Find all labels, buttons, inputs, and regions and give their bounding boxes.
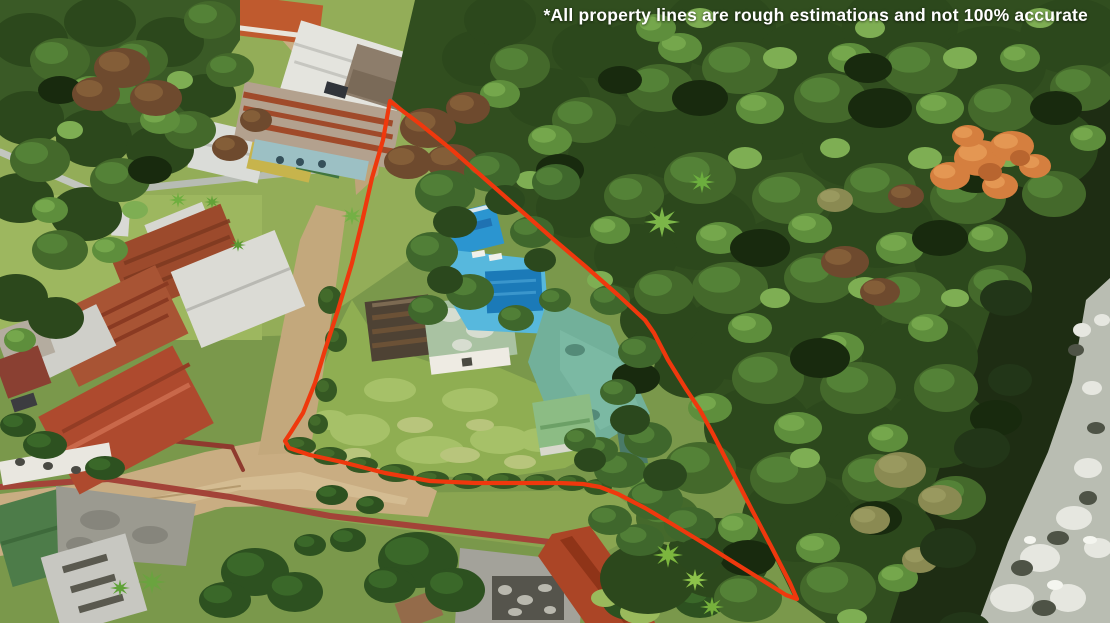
canopy-light-hi — [800, 536, 824, 551]
hedge-hi — [310, 416, 321, 426]
brown-tree-hi — [76, 80, 102, 97]
canopy-bright — [941, 289, 969, 307]
pit-stones — [508, 608, 522, 616]
canopy-light-hi — [880, 235, 906, 251]
canopy-bright — [820, 138, 850, 158]
tree-dark-hi — [3, 415, 23, 427]
flame-tree-dark — [978, 163, 1002, 181]
water-glint — [1083, 536, 1097, 544]
canopy-bright — [760, 288, 790, 308]
property-tree-hi — [410, 236, 439, 256]
canopy-mid-hi — [95, 162, 128, 184]
canopy-mid-hi — [850, 168, 890, 193]
rock-dark — [1079, 491, 1097, 505]
hedge-hi — [320, 289, 333, 303]
tree-dark-hi — [88, 458, 110, 470]
rock-dark — [1011, 560, 1033, 576]
canopy-mid-hi — [639, 274, 672, 296]
rock-dark — [1047, 531, 1069, 545]
property-tree-hi — [411, 298, 433, 313]
hedge-hi — [317, 380, 329, 392]
tree-dark-hi — [333, 530, 353, 542]
river-overhang-canopy — [980, 280, 1032, 316]
canopy-mid-hi — [37, 234, 68, 254]
property-tree-hi — [536, 167, 562, 185]
canopy-mid-hi — [720, 578, 757, 602]
rock-dark — [1068, 344, 1084, 356]
canopy-light-hi — [700, 225, 726, 241]
flame-tree-hi — [994, 134, 1018, 149]
canopy-mid-hi — [800, 78, 840, 103]
canopy-shadow — [128, 156, 172, 184]
canopy-mid-hi — [888, 47, 930, 73]
olive-dry-brush-hi — [820, 190, 840, 202]
rock-light — [1074, 458, 1102, 478]
tree-dark-hi — [385, 537, 429, 565]
river-overhang-canopy — [920, 528, 976, 568]
canopy-light-hi — [7, 330, 25, 342]
aerial-photo-svg — [0, 0, 1110, 623]
canopy-mid-hi — [35, 42, 68, 64]
windows-dark — [296, 158, 304, 166]
property-tree-hi — [469, 156, 500, 176]
rock-dark — [1032, 600, 1056, 616]
tree-dark-hi — [358, 498, 373, 507]
olive-dry-brush-hi — [922, 488, 946, 503]
canopy-light-hi — [871, 427, 893, 441]
property-tree-hi — [542, 290, 560, 302]
olive-dry-brush-hi — [853, 509, 875, 523]
tree-dark-hi — [272, 576, 303, 596]
pit-stones — [517, 595, 533, 605]
brown-tree-hi — [99, 52, 130, 72]
canopy-shadow — [1030, 91, 1082, 125]
windows-dark — [15, 458, 25, 466]
brown-tree-hi — [891, 186, 911, 198]
windows-dark — [43, 462, 53, 470]
canopy-bright — [790, 448, 820, 468]
rock-light — [1073, 323, 1091, 337]
pit-stones — [498, 585, 512, 595]
brown-tree-hi — [863, 281, 885, 295]
pavement-stain — [132, 526, 168, 544]
property-tree-hi — [622, 339, 646, 355]
lawn-dry-patch — [440, 447, 480, 463]
canopy-shadow — [848, 88, 912, 128]
canopy-light-hi — [732, 316, 756, 331]
canopy-bright — [943, 47, 977, 69]
rock-light — [990, 584, 1034, 612]
palm-tree — [138, 570, 166, 594]
canopy-light-hi — [1073, 127, 1093, 140]
brown-tree-hi — [134, 83, 163, 101]
canopy-light-hi — [881, 567, 903, 581]
water-glint — [1024, 536, 1036, 544]
canopy-light-hi — [920, 95, 946, 111]
canopy-mid-hi — [188, 4, 217, 23]
canopy-light-hi — [95, 239, 115, 252]
canopy-mid-hi — [806, 567, 848, 593]
lawn-dry-patch — [466, 419, 494, 431]
property-tree-dark — [610, 405, 650, 435]
lawn-dry-patch — [504, 455, 536, 469]
canopy-light-hi — [778, 415, 804, 431]
canopy-mid-hi — [15, 142, 48, 164]
tree-dark-hi — [297, 536, 315, 547]
tree-dark-hi — [319, 487, 337, 497]
canopy-dark — [28, 297, 84, 339]
brown-tree-hi — [215, 137, 235, 150]
canopy-shadow — [844, 53, 892, 83]
water-glint — [1047, 580, 1063, 590]
canopy-mid-hi — [557, 101, 592, 124]
pit-stones — [538, 584, 552, 592]
canopy-light-hi — [971, 227, 993, 241]
rock-light — [1056, 506, 1092, 530]
canopy-mid-hi — [708, 47, 750, 73]
lawn-light-patch — [442, 388, 498, 412]
canopy-mid-hi — [738, 357, 778, 383]
banana-plant — [700, 597, 724, 617]
canopy-mid-hi — [210, 56, 236, 73]
banana-plant — [682, 569, 708, 591]
tree-dark-hi — [27, 434, 51, 448]
property-tree-dark — [643, 459, 687, 491]
canopy-light-hi — [792, 216, 816, 231]
rock-dark — [1087, 422, 1105, 434]
brown-tree-hi — [243, 110, 261, 122]
canopy-shadow — [730, 229, 790, 267]
lawn-dry-patch — [397, 417, 433, 433]
property-tree-hi — [592, 508, 616, 523]
canopy-shadow — [790, 338, 850, 378]
canopy-mid-hi — [919, 368, 954, 392]
pit-stones — [544, 606, 556, 614]
canopy-bright — [57, 121, 83, 139]
property-tree-hi — [501, 307, 521, 320]
palm-tree — [341, 207, 363, 226]
canopy-bright — [763, 47, 797, 69]
canopy-mid-hi — [698, 267, 740, 293]
building-door — [462, 357, 473, 366]
windows-dark — [318, 160, 326, 168]
canopy-bright — [728, 147, 762, 169]
palm-tree — [644, 207, 680, 238]
canopy-light-hi — [721, 516, 743, 531]
canopy-light-hi — [740, 95, 766, 111]
canopy-light-hi — [593, 219, 615, 233]
brown-tree-hi — [825, 249, 851, 265]
rock-light — [1082, 381, 1102, 395]
property-tree-dark — [574, 448, 606, 472]
canopy-mid-hi — [758, 177, 800, 203]
property-tree-dark — [427, 266, 463, 294]
deck-stain — [565, 344, 585, 356]
tree-dark-hi — [368, 570, 397, 588]
flame-tree-dark — [1010, 150, 1030, 166]
canopy-mid-hi — [974, 88, 1011, 112]
canopy-light-hi — [532, 128, 556, 143]
canopy-shadow — [598, 66, 642, 94]
tree-dark-hi — [227, 552, 264, 576]
canopy-shadow — [912, 220, 968, 256]
windows-dark — [276, 156, 284, 164]
property-disclaimer-text: *All property lines are rough estimation… — [543, 5, 1088, 26]
property-tree-dark — [433, 206, 477, 238]
olive-dry-brush-hi — [878, 455, 907, 473]
flame-tree-hi — [955, 127, 973, 138]
river-overhang-canopy — [988, 364, 1032, 396]
river-overhang-canopy — [954, 428, 1010, 468]
windows-dark — [71, 466, 81, 474]
brown-tree-hi — [388, 148, 414, 165]
property-tree-dark — [524, 248, 556, 272]
brown-tree-hi — [450, 95, 474, 111]
flame-tree-hi — [933, 165, 955, 179]
canopy-shadow — [672, 80, 728, 116]
rock-light — [1094, 314, 1110, 326]
property-tree-hi — [420, 174, 453, 196]
canopy-light-hi — [483, 83, 505, 97]
pavement-stain — [80, 510, 120, 530]
tree-dark-hi — [203, 585, 232, 603]
canopy-mid-hi — [1055, 69, 1090, 92]
lawn-light-patch — [364, 378, 416, 402]
canopy-mid-hi — [495, 48, 528, 70]
aerial-photo: *All property lines are rough estimation… — [0, 0, 1110, 623]
canopy-light-hi — [35, 199, 55, 212]
canopy-mid-hi — [609, 178, 642, 200]
canopy-bright — [122, 201, 148, 219]
canopy-light-hi — [1003, 47, 1025, 61]
tree-dark-hi — [430, 572, 463, 594]
property-tree-hi — [567, 430, 585, 442]
property-tree-hi — [603, 381, 623, 394]
canopy-mid-hi — [1027, 175, 1062, 198]
roof-blotch — [452, 339, 472, 351]
canopy-light-hi — [911, 317, 933, 331]
